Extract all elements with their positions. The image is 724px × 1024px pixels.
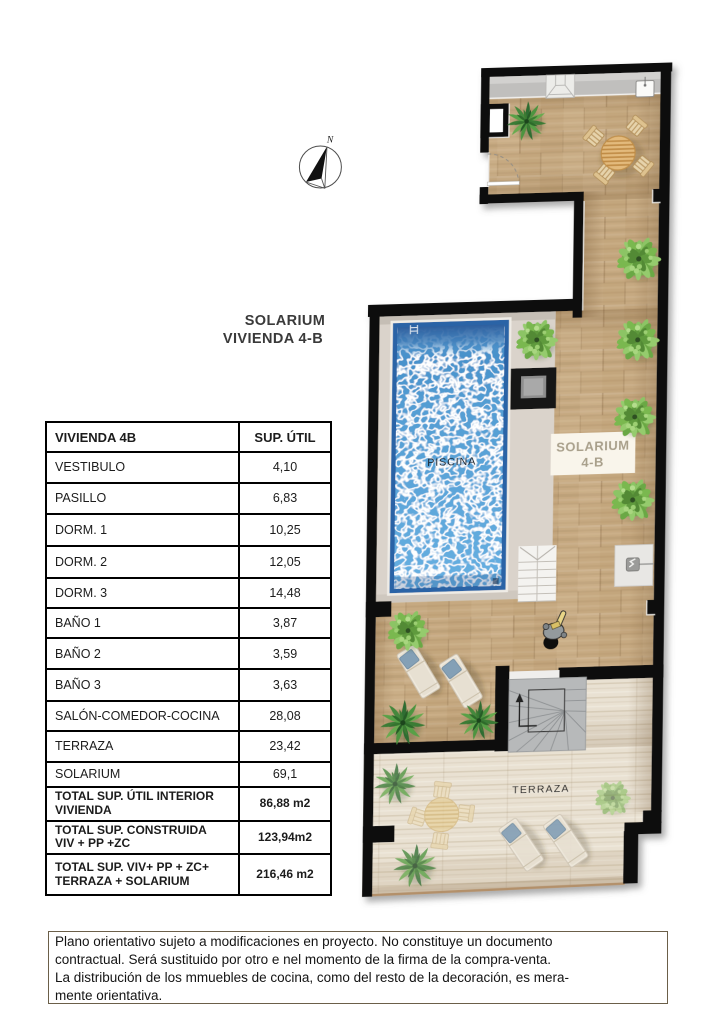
svg-text:PISCINA: PISCINA <box>427 456 476 469</box>
svg-text:4-B: 4-B <box>581 454 604 470</box>
svg-text:SOLARIUM: SOLARIUM <box>556 438 630 455</box>
svg-text:TERRAZA: TERRAZA <box>512 783 570 797</box>
svg-text:N: N <box>326 136 334 146</box>
